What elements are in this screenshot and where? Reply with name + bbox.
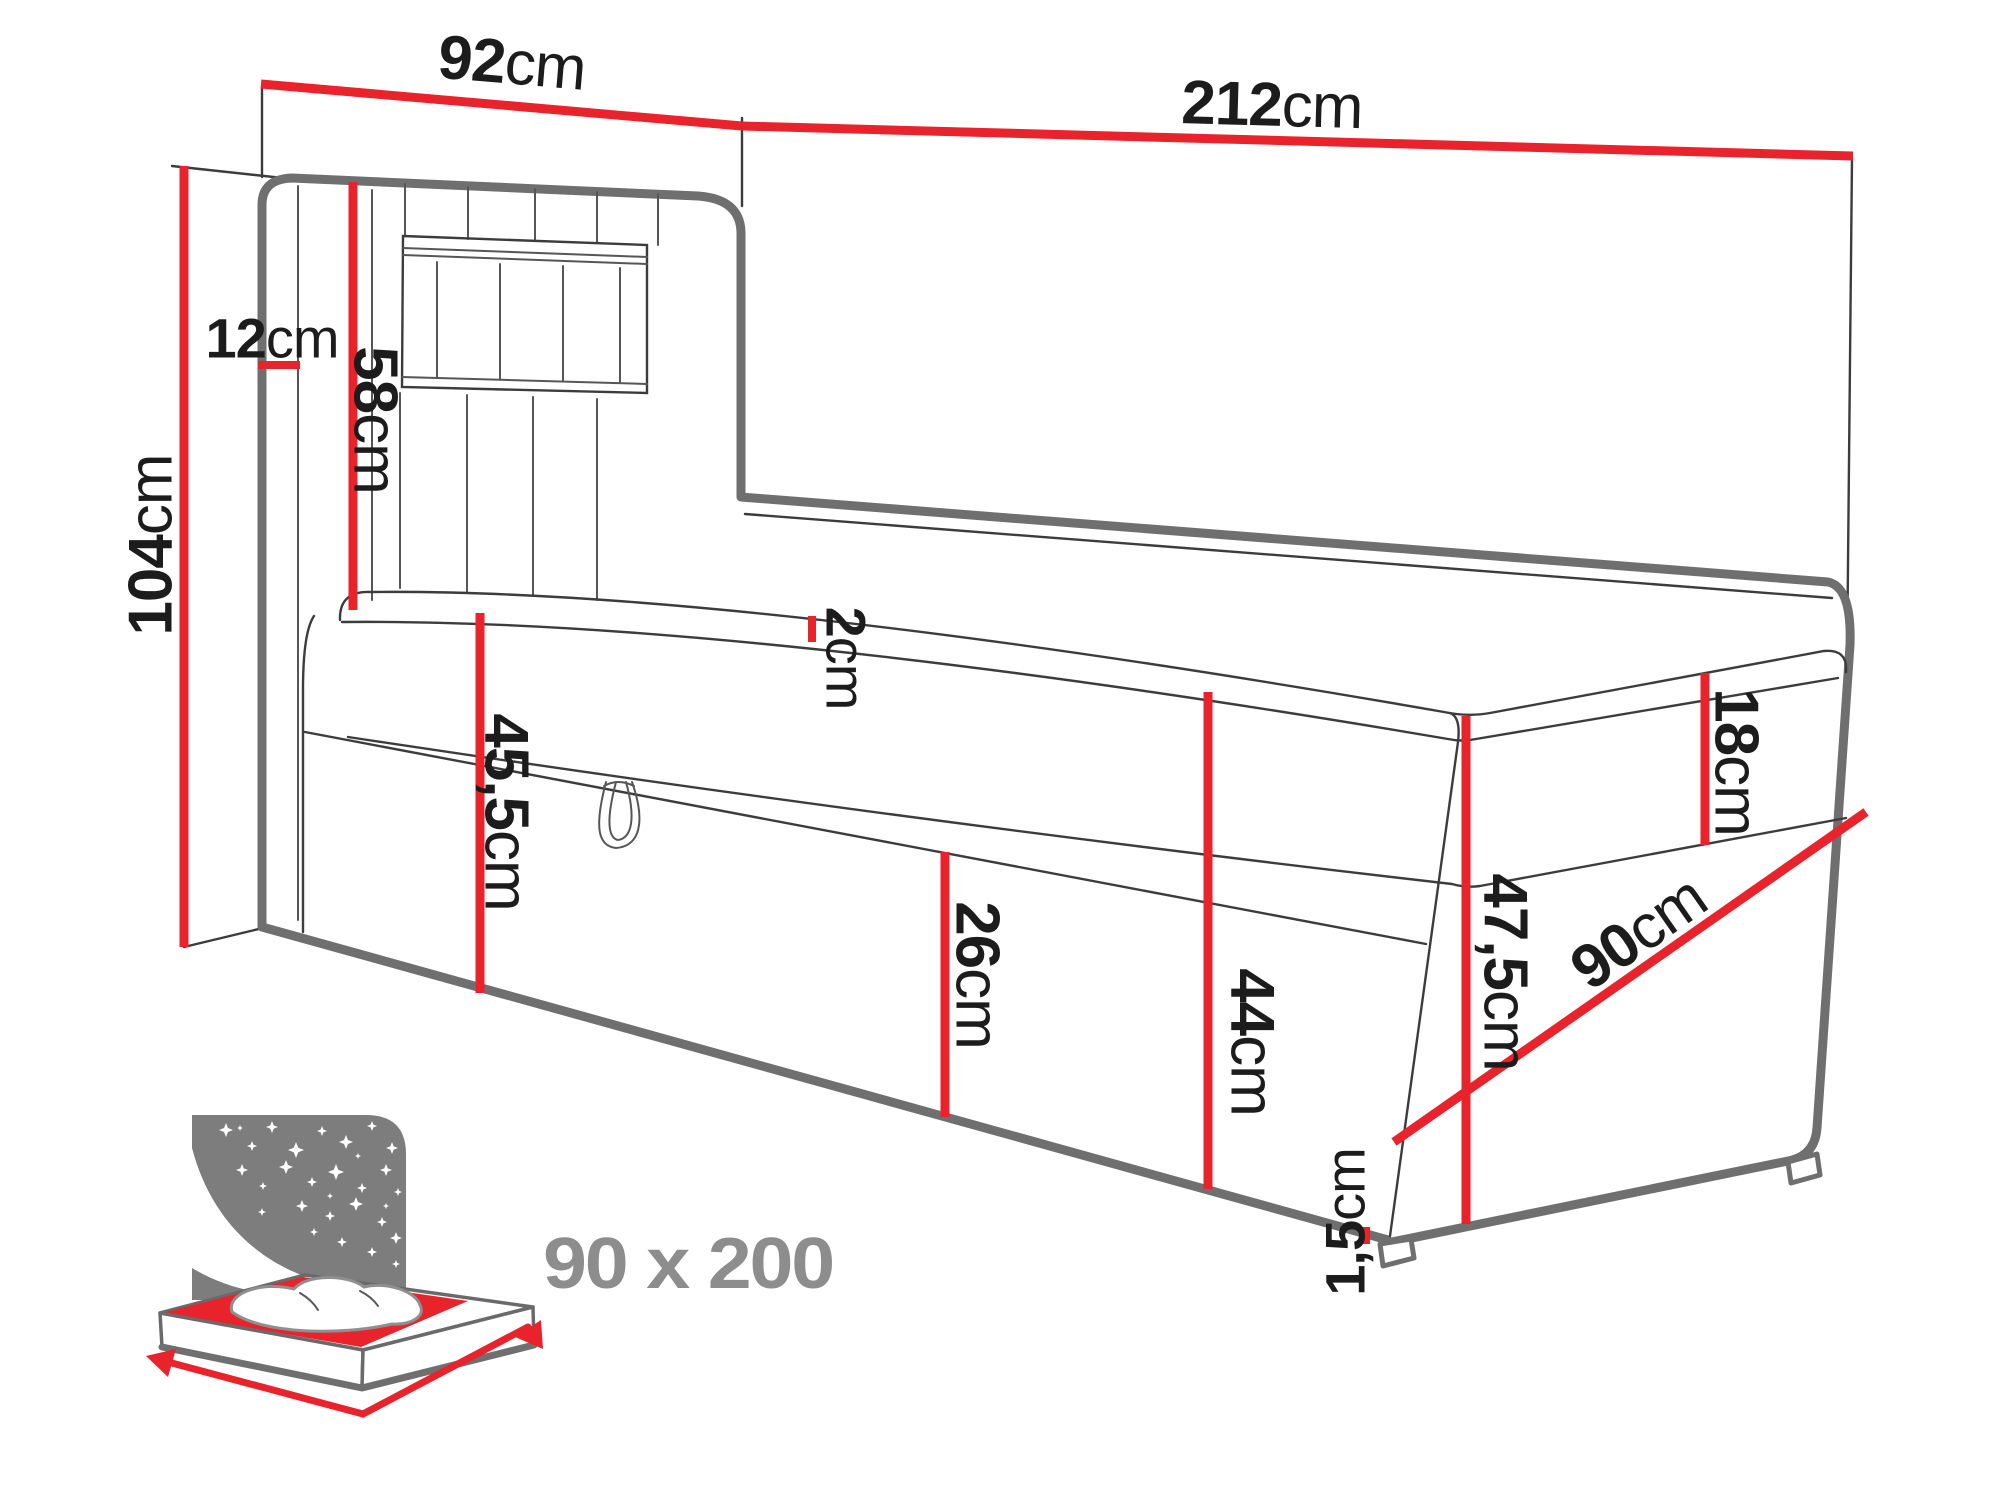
dim-label-212cm: 212cm — [1180, 68, 1363, 142]
box-left-corner-edge — [303, 616, 314, 932]
dim-label-47-5cm: 47,5cm — [1470, 873, 1539, 1070]
topper-seam — [342, 622, 1838, 741]
back-topper-seam — [745, 514, 1832, 598]
dim-label-92cm: 92cm — [435, 23, 588, 104]
headboard-shelf — [402, 236, 647, 393]
dim-label-58cm: 58cm — [340, 346, 409, 494]
dim-label-45-5cm: 45,5cm — [471, 713, 540, 910]
dim-label-104cm: 104cm — [117, 454, 186, 635]
size-badge: 90 x 200 — [543, 1224, 833, 1304]
extension-line-foot — [1847, 158, 1852, 666]
bed-leg-right — [1788, 1154, 1820, 1183]
diagram-canvas: 92cm 212cm 104cm 12cm 58cm 2cm 45,5cm 26… — [0, 0, 2000, 1500]
mattress-bottom-seam — [348, 737, 1846, 887]
arrowhead-left-icon — [146, 1349, 176, 1377]
dim-label-26cm: 26cm — [942, 901, 1011, 1049]
bed-leg-front — [1380, 1239, 1414, 1266]
bed-dimension-diagram: 92cm 212cm 104cm 12cm 58cm 2cm 45,5cm 26… — [0, 0, 2000, 1500]
bed-size-icon: 90 x 200 — [146, 1115, 833, 1414]
dim-label-44cm: 44cm — [1217, 968, 1286, 1116]
floor-line — [184, 928, 263, 947]
dim-label-18cm: 18cm — [1701, 688, 1770, 836]
dim-label-12cm: 12cm — [206, 307, 339, 370]
mattress-top-edge — [340, 592, 1846, 715]
dimension-lines — [184, 84, 1866, 1244]
dim-label-90cm: 90cm — [1558, 862, 1719, 1003]
front-right-corner-edge — [1390, 713, 1459, 1236]
dim-label-1-5cm: 1,5cm — [1314, 1148, 1377, 1296]
dim-label-2cm: 2cm — [814, 607, 877, 710]
bed-drawing: 92cm 212cm 104cm 12cm 58cm 2cm 45,5cm 26… — [117, 23, 1866, 1296]
